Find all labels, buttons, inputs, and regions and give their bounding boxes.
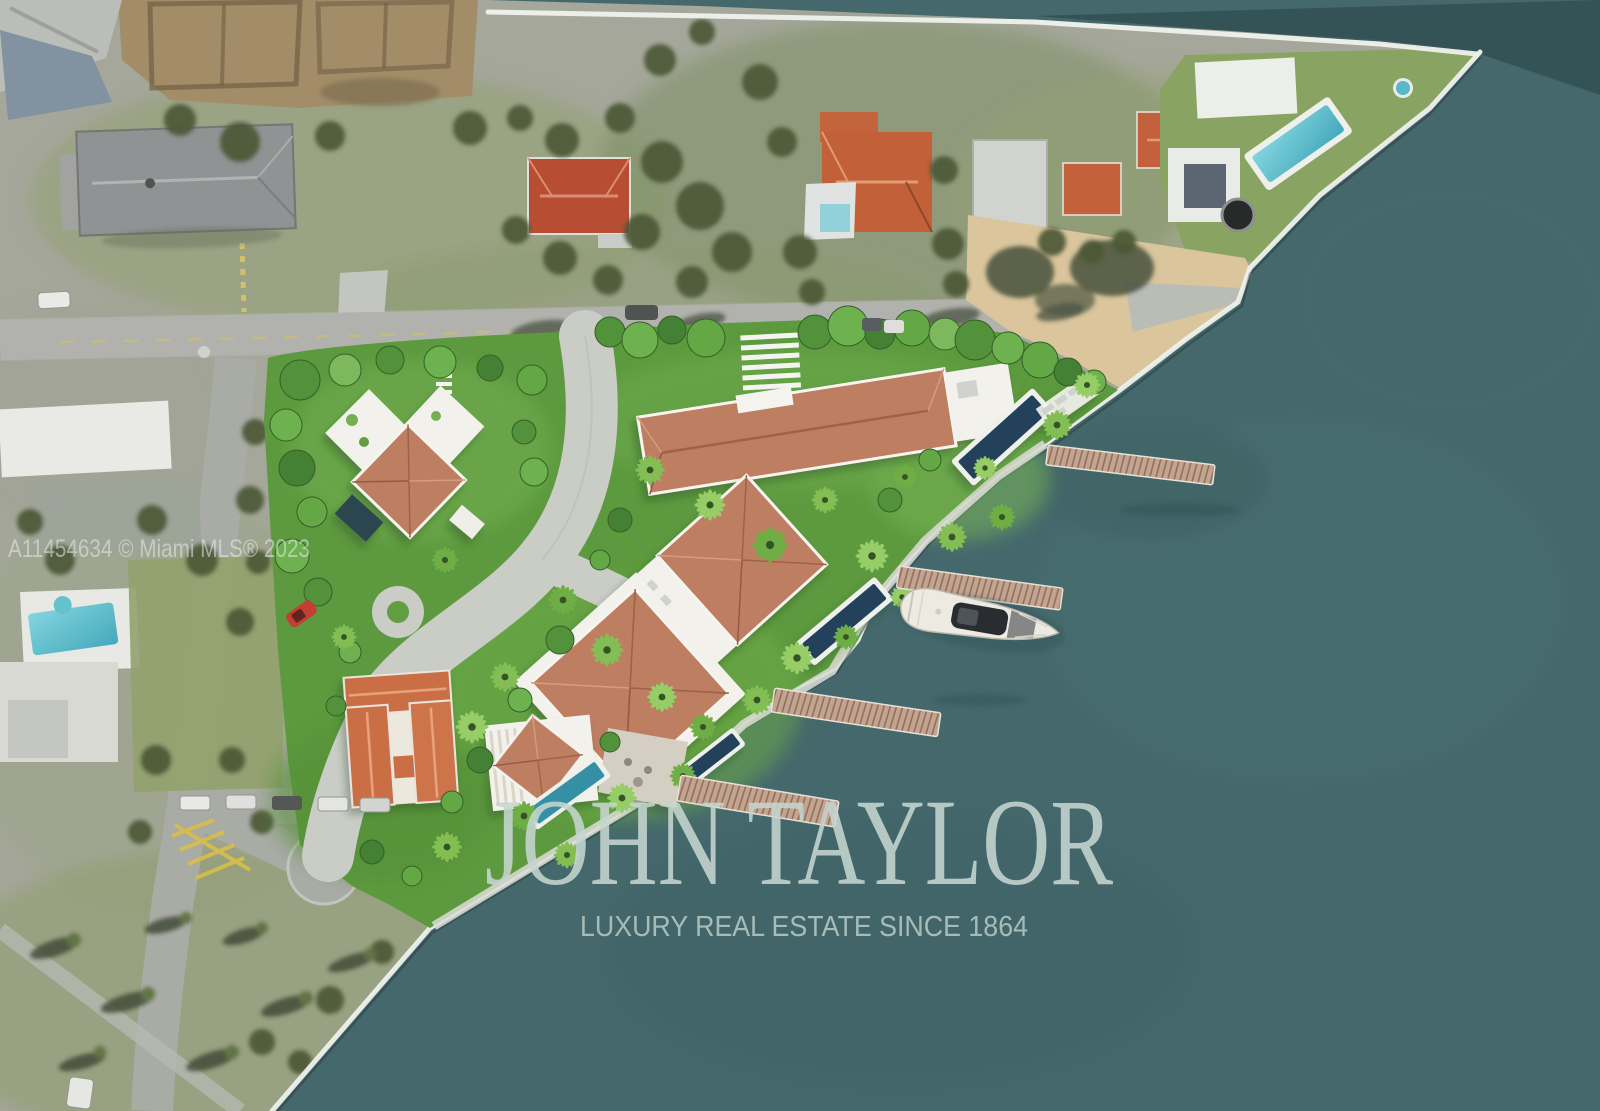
aerial-photo: A11454634 © Miami MLS® 2023 JOHN TAYLOR … bbox=[0, 0, 1600, 1111]
listing-photo-frame: A11454634 © Miami MLS® 2023 JOHN TAYLOR … bbox=[0, 0, 1600, 1111]
brand-watermark: JOHN TAYLOR bbox=[485, 774, 1113, 911]
brand-tagline: LUXURY REAL ESTATE SINCE 1864 bbox=[580, 911, 1028, 943]
mls-watermark: A11454634 © Miami MLS® 2023 bbox=[8, 535, 310, 563]
